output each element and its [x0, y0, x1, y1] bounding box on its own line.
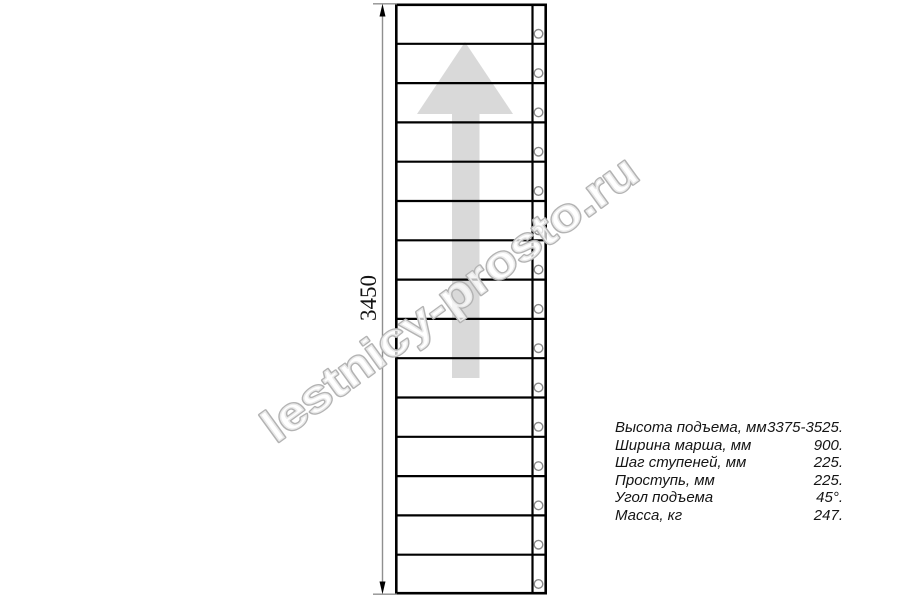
spec-row: Ширина марша, мм900.	[615, 437, 843, 455]
dimension-arrow-up-icon	[380, 4, 386, 17]
screw-icon	[534, 462, 543, 471]
spec-label: Ширина марша, мм	[615, 437, 751, 455]
spec-value: 225.	[814, 472, 843, 490]
screw-icon	[534, 540, 543, 549]
spec-row: Угол подъема45°.	[615, 489, 843, 507]
screw-icon	[534, 30, 543, 39]
spec-row: Шаг ступеней, мм225.	[615, 454, 843, 472]
screw-icon	[534, 305, 543, 314]
screw-icon	[534, 383, 543, 392]
dimension-arrow-down-icon	[380, 582, 386, 595]
spec-value: 247.	[814, 507, 843, 525]
spec-label: Проступь, мм	[615, 472, 715, 490]
screw-icon	[534, 187, 543, 196]
drawing-canvas: 3450 lestnicy-prosto.ru Высота подъема, …	[0, 0, 900, 600]
screw-icon	[534, 580, 543, 589]
spec-row: Проступь, мм225.	[615, 472, 843, 490]
specs-table: Высота подъема, мм3375-3525.Ширина марша…	[615, 419, 843, 525]
spec-value: 225.	[814, 454, 843, 472]
spec-row: Масса, кг247.	[615, 507, 843, 525]
spec-label: Шаг ступеней, мм	[615, 454, 746, 472]
screw-circles	[534, 30, 543, 589]
spec-label: Высота подъема, мм	[615, 419, 767, 437]
screw-icon	[534, 108, 543, 117]
screw-icon	[534, 69, 543, 78]
screw-icon	[534, 423, 543, 432]
spec-label: Масса, кг	[615, 507, 682, 525]
dimension-3450: 3450	[356, 4, 397, 594]
screw-icon	[534, 344, 543, 353]
dimension-label: 3450	[356, 275, 381, 321]
spec-value: 45°.	[816, 489, 843, 507]
screw-icon	[534, 147, 543, 156]
spec-value: 900.	[814, 437, 843, 455]
screw-icon	[534, 501, 543, 510]
spec-label: Угол подъема	[615, 489, 713, 507]
watermark-text: lestnicy-prosto.ru	[251, 144, 647, 452]
spec-value: 3375-3525.	[767, 419, 843, 437]
spec-row: Высота подъема, мм3375-3525.	[615, 419, 843, 437]
